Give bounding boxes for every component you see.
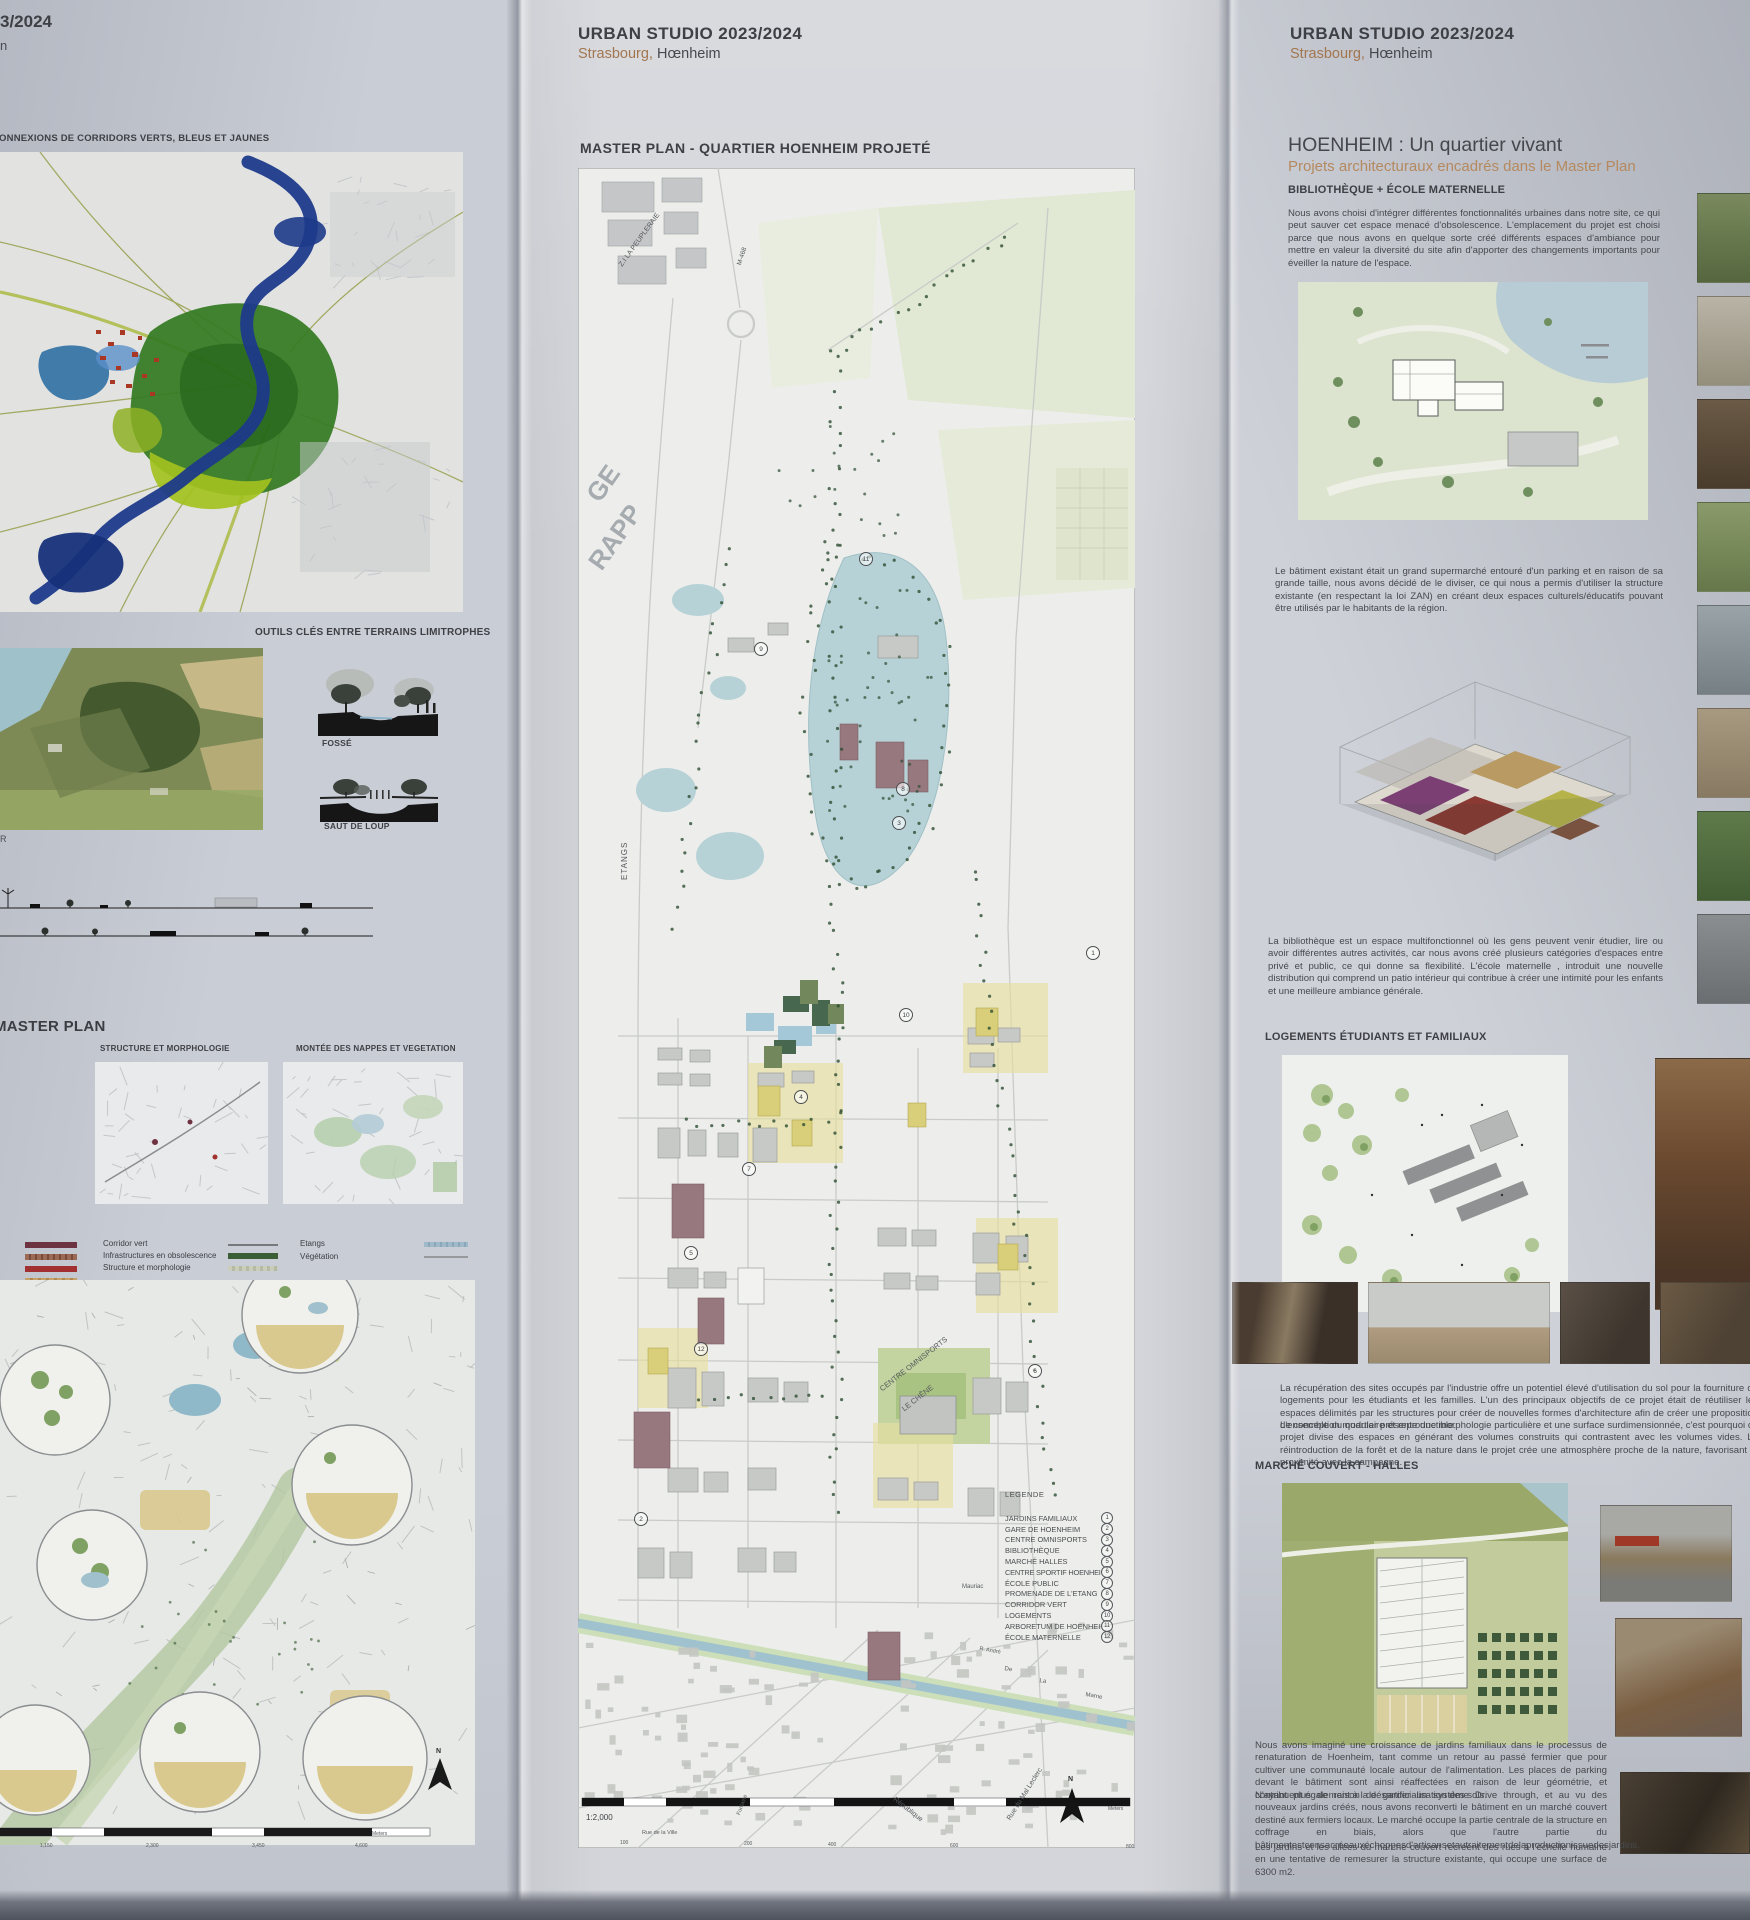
map-scale-label: 1:2,000 <box>586 1813 613 1822</box>
left-north-label: N <box>436 1748 441 1755</box>
bibliotheque-site-plan <box>1298 282 1648 520</box>
bibliotheque-axonometric <box>1300 652 1645 904</box>
supermarket-sign <box>1615 1536 1659 1546</box>
right-studio-subtitle: Strasbourg,Hœnheim <box>1290 46 1433 62</box>
map-legend-title: LEGENDE <box>1005 1490 1133 1499</box>
right-poster-panel: URBAN STUDIO 2023/2024 Strasbourg,Hœnhei… <box>1228 0 1750 1920</box>
leclerc-street-label: Rue du Mal Leclerc <box>1006 1767 1044 1822</box>
left-scale-tick-2: 2,300 <box>146 1843 159 1849</box>
big-road-label-1: GE <box>580 459 627 508</box>
legend-item: MARCHÉ HALLES5 <box>1005 1556 1133 1567</box>
legend-item: GARE DE HOENHEIM2 <box>1005 1524 1133 1535</box>
thin-line-swatch <box>424 1256 468 1258</box>
center-scale-tick-3: 400 <box>828 1842 836 1848</box>
strip-photo-4 <box>1697 502 1750 592</box>
vegetation-label: Végétation <box>300 1252 338 1261</box>
bibliotheque-paragraph-3: La bibliothèque est un espace multifonct… <box>1268 936 1663 998</box>
etangs-line-swatch <box>228 1244 278 1246</box>
left-poster-panel: 3/2024 n CONNEXIONS DE CORRIDORS VERTS, … <box>0 0 518 1920</box>
right-place-label: Hœnheim <box>1369 46 1433 62</box>
republique-street-label: République <box>892 1796 924 1823</box>
center-map-title: MASTER PLAN - QUARTIER HOENHEIM PROJETÉ <box>580 140 931 156</box>
vegetation-swatch <box>228 1253 278 1259</box>
legend-item: CENTRE OMNISPORTS3 <box>1005 1535 1133 1546</box>
bibliotheque-section-title: BIBLIOTHÈQUE + ÉCOLE MATERNELLE <box>1288 184 1505 196</box>
center-scale-tick-2: 200 <box>744 1841 752 1847</box>
etangs-map-label: ETANGS <box>620 842 629 880</box>
infrastructures-label: Infrastructures en obsolescence <box>103 1251 216 1260</box>
structure-swatch <box>25 1266 77 1272</box>
legend-item: JARDINS FAMILIAUX1 <box>1005 1513 1133 1524</box>
map-marker-5: 5 <box>684 1246 698 1260</box>
center-city-label: Strasbourg, <box>578 46 653 62</box>
center-scale-tick-5: 800 <box>1126 1844 1134 1850</box>
map-marker-6: 6 <box>1028 1364 1042 1378</box>
logements-site-plan <box>1282 1055 1568 1312</box>
left-header-fragment: 3/2024 <box>0 12 52 32</box>
map-marker-7: 7 <box>742 1162 756 1176</box>
right-studio-title: URBAN STUDIO 2023/2024 <box>1290 24 1514 44</box>
strip-photo-3 <box>1697 399 1750 489</box>
map-legend: LEGENDE JARDINS FAMILIAUX1 GARE DE HOENH… <box>1005 1490 1133 1643</box>
photo-of-poster-wall: 3/2024 n CONNEXIONS DE CORRIDORS VERTS, … <box>0 0 1750 1920</box>
etangs-label: Etangs <box>300 1239 325 1248</box>
legend-item: ARBORETUM DE HOENHEIM11 <box>1005 1621 1133 1632</box>
marche-site-plan <box>1282 1483 1568 1745</box>
canal-label-la: La <box>1039 1678 1047 1685</box>
blue-speckle-swatch <box>424 1242 468 1247</box>
map-marker-8: 8 <box>896 782 910 796</box>
logements-photo-3 <box>1560 1282 1650 1364</box>
map-marker-10: 10 <box>899 1008 913 1022</box>
left-meters-label: Meters <box>372 1831 387 1837</box>
omnisports-label-1: CENTRE OMNISPORTS <box>878 1335 949 1393</box>
center-studio-title: URBAN STUDIO 2023/2024 <box>578 24 802 44</box>
fosse-label: FOSSÉ <box>322 738 352 748</box>
legend-item: CORRIDOR VERT9 <box>1005 1599 1133 1610</box>
m468-road-label: M-468 <box>736 246 748 266</box>
corridors-section-title: CONNEXIONS DE CORRIDORS VERTS, BLEUS ET … <box>0 133 269 144</box>
logements-photo-2 <box>1368 1282 1550 1364</box>
rue-ville-street-label: Rue de la Ville <box>642 1830 677 1836</box>
legend-item: ÉCOLE MATERNELLE12 <box>1005 1632 1133 1643</box>
strip-photo-6 <box>1697 708 1750 798</box>
nappes-subtitle: MONTÉE DES NAPPES ET VEGETATION <box>296 1044 456 1053</box>
aerial-photo-illustration <box>0 648 263 830</box>
mauriac-street-label: Mauriac <box>962 1584 983 1590</box>
canal-label-de: De <box>1004 1666 1013 1673</box>
left-header-fragment-2: n <box>0 38 7 53</box>
canal-label-marne: Marne <box>1085 1692 1103 1701</box>
legend-item: ÉCOLE PUBLIC7 <box>1005 1578 1133 1589</box>
structure-morph-label: Structure et morphologie <box>103 1263 191 1272</box>
center-scale-tick-1: 100 <box>620 1840 628 1846</box>
legend-item: LOGEMENTS10 <box>1005 1610 1133 1621</box>
omnisports-label-2: LE CHÊNE <box>900 1383 935 1413</box>
left-masterplan-map <box>0 1280 475 1845</box>
structure-analysis-map <box>95 1062 268 1204</box>
legend-item: BIBLIOTHÈQUE4 <box>1005 1545 1133 1556</box>
marche-photo-supermarket <box>1600 1505 1732 1602</box>
legend-item: PROMENADE DE L'ETANG8 <box>1005 1589 1133 1600</box>
map-marker-9: 9 <box>754 642 768 656</box>
marche-section-title: MARCHÉ COUVERT - HALLES <box>1255 1460 1419 1472</box>
marche-paragraph-3: Les jardins et les allées du marché couv… <box>1255 1842 1607 1879</box>
legend-item: CENTRE SPORTIF HOENHEIM6 <box>1005 1567 1133 1578</box>
bibliotheque-paragraph-2: Le bâtiment existant était un grand supe… <box>1275 566 1663 616</box>
strip-photo-2 <box>1697 296 1750 386</box>
center-north-label: N <box>1068 1776 1073 1783</box>
structure-subtitle: STRUCTURE ET MORPHOLOGIE <box>100 1044 230 1053</box>
saut-de-loup-section-sketch <box>320 778 438 822</box>
logements-photo-tall <box>1655 1058 1750 1310</box>
fosse-section-sketch <box>318 660 438 736</box>
right-city-label: Strasbourg, <box>1290 46 1365 62</box>
fontaine-street-label: Fontaine <box>736 1794 749 1816</box>
bibliotheque-paragraph-1: Nous avons choisi d'intégrer différentes… <box>1288 208 1660 270</box>
logements-photo-1 <box>1232 1282 1358 1364</box>
masterplan-map-overlay: Z.I LA PEUPLERAIE M-468 GE RAPP ETANGS C… <box>578 168 1135 1848</box>
analysis-legend: Corridor vert Infrastructures en obsoles… <box>0 1236 500 1286</box>
map-marker-11: 11 <box>859 552 873 566</box>
nappes-analysis-map <box>283 1062 463 1204</box>
map-marker-4: 4 <box>794 1090 808 1104</box>
left-scale-tick-3: 3,450 <box>252 1843 265 1849</box>
strip-photo-7 <box>1697 811 1750 901</box>
map-marker-12: 12 <box>694 1342 708 1356</box>
corridor-vert-swatch <box>25 1242 77 1248</box>
zi-peupleraie-label: Z.I LA PEUPLERAIE <box>618 212 661 268</box>
logements-photo-4 <box>1660 1282 1750 1364</box>
right-main-title: HOENHEIM : Un quartier vivant <box>1288 134 1562 157</box>
left-scale-tick-1: 1,150 <box>40 1843 53 1849</box>
map-marker-1: 1 <box>1086 946 1100 960</box>
edge-text-fragment: R <box>0 834 7 844</box>
map-marker-3: 3 <box>892 816 906 830</box>
infrastructures-swatch <box>25 1254 77 1260</box>
strip-photo-5 <box>1697 605 1750 695</box>
map-marker-2: 2 <box>634 1512 648 1526</box>
master-plan-title: MASTER PLAN <box>0 1018 106 1035</box>
saut-de-loup-label: SAUT DE LOUP <box>324 821 390 831</box>
logements-section-title: LOGEMENTS ÉTUDIANTS ET FAMILIAUX <box>1265 1031 1487 1043</box>
left-scale-tick-4: 4,600 <box>355 1843 368 1849</box>
right-subtitle: Projets architecturaux encadrés dans le … <box>1288 158 1636 175</box>
urban-sections-drawing <box>0 888 373 950</box>
center-scale-tick-4: 600 <box>950 1843 958 1849</box>
r-andre-street-label: R. André <box>979 1646 1001 1656</box>
center-studio-subtitle: Strasbourg,Hœnheim <box>578 46 721 62</box>
big-road-label-2: RAPP <box>582 499 649 576</box>
wall-shadow-strip <box>0 1890 1750 1920</box>
center-place-label: Hœnheim <box>657 46 721 62</box>
outils-section-title: OUTILS CLÉS ENTRE TERRAINS LIMITROPHES <box>255 627 490 638</box>
strip-photo-1 <box>1697 193 1750 283</box>
corridor-vert-label: Corridor vert <box>103 1239 147 1248</box>
center-poster-panel: URBAN STUDIO 2023/2024 Strasbourg,Hœnhei… <box>518 0 1228 1920</box>
center-meters-label: Meters <box>1108 1806 1123 1812</box>
strip-photo-8 <box>1697 914 1750 1004</box>
pale-swatch <box>228 1266 278 1271</box>
marche-photo-roadside <box>1615 1618 1742 1737</box>
corridors-watercolor-map <box>0 152 463 612</box>
